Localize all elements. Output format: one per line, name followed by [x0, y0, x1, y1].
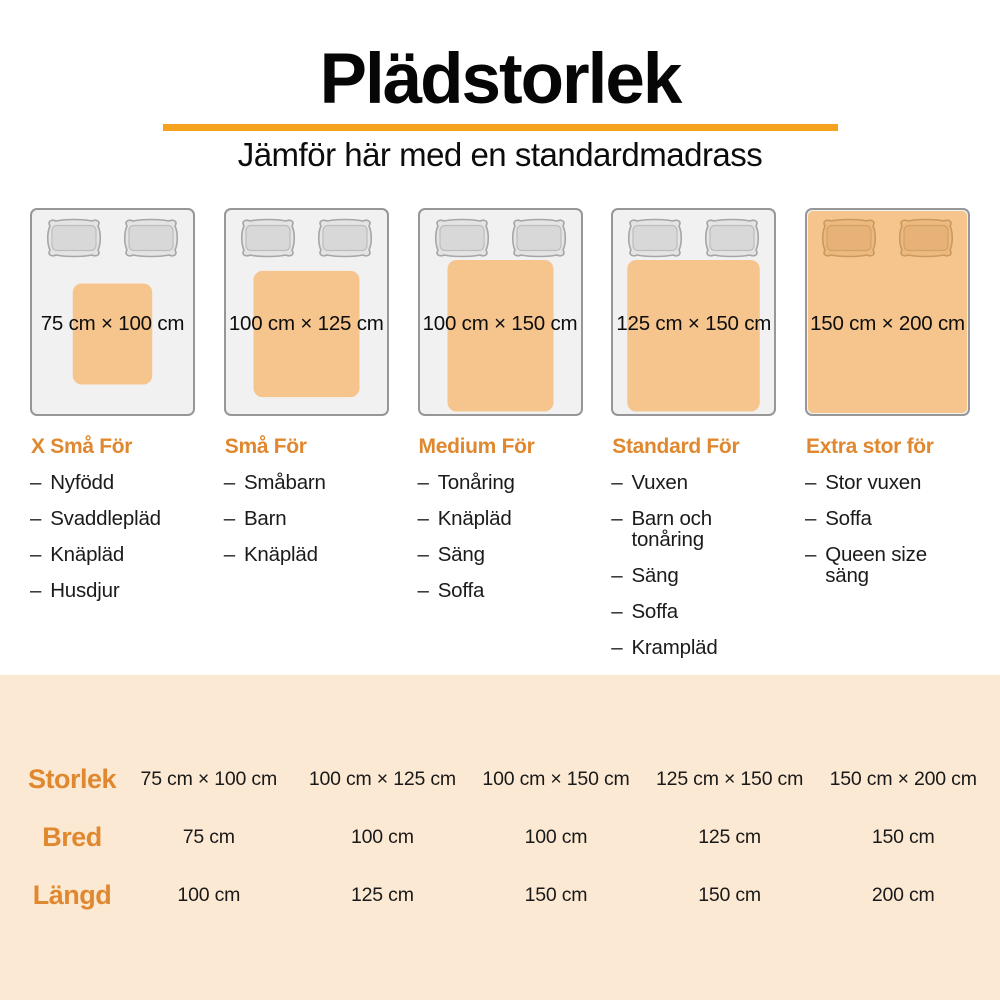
use-list: –Småbarn–Barn–Knäpläd [224, 472, 389, 565]
size-column: 150 cm × 200 cm Extra stor för –Stor vux… [805, 208, 970, 658]
table-cell: 200 cm [816, 884, 990, 907]
use-list-item: –Stor vuxen [805, 472, 970, 493]
use-list-item: –Krampläd [611, 637, 776, 658]
column-heading: Medium För [419, 436, 583, 457]
use-list-item: –Husdjur [30, 580, 195, 601]
list-dash: – [611, 508, 622, 550]
pillow-icon [823, 219, 876, 256]
pillow-icon [435, 219, 488, 256]
use-list-item: –Vuxen [611, 472, 776, 493]
list-item-text: Tonåring [438, 472, 515, 493]
bed-diagram: 100 cm × 125 cm [224, 208, 389, 416]
pillow-icon [48, 219, 101, 256]
pillow-icon [512, 219, 565, 256]
column-heading: Standard För [612, 436, 776, 457]
table-row-label: Längd [22, 880, 122, 911]
table-cell: 150 cm [643, 884, 817, 907]
table-row-label: Storlek [22, 764, 122, 795]
use-list-item: –Barn [224, 508, 389, 529]
pillow-icon [125, 219, 178, 256]
size-column: 75 cm × 100 cm X Små För –Nyfödd–Svaddle… [30, 208, 195, 658]
bed-diagram: 125 cm × 150 cm [611, 208, 776, 416]
list-dash: – [30, 544, 41, 565]
list-item-text: Vuxen [631, 472, 687, 493]
use-list-item: –Knäpläd [30, 544, 195, 565]
table-cell: 100 cm [296, 826, 470, 849]
list-item-text: Säng [438, 544, 485, 565]
list-dash: – [418, 544, 429, 565]
list-dash: – [418, 580, 429, 601]
use-list: –Nyfödd–Svaddlepläd–Knäpläd–Husdjur [30, 472, 195, 601]
list-dash: – [611, 637, 622, 658]
blanket-size-label: 100 cm × 150 cm [423, 312, 578, 336]
list-dash: – [224, 472, 235, 493]
pillow-icon [706, 219, 759, 256]
table-row-label: Bred [22, 822, 122, 853]
list-item-text: Småbarn [244, 472, 326, 493]
table-cell: 125 cm × 150 cm [643, 768, 817, 791]
pillow-icon [319, 219, 372, 256]
list-dash: – [224, 508, 235, 529]
list-item-text: Barn och tonåring [631, 508, 776, 550]
list-dash: – [805, 508, 816, 529]
list-dash: – [611, 565, 622, 586]
blanket-size-label: 100 cm × 125 cm [229, 312, 384, 336]
table-cell: 75 cm [122, 826, 296, 849]
list-item-text: Krampläd [631, 637, 717, 658]
use-list-item: –Knäpläd [418, 508, 583, 529]
list-item-text: Knäpläd [50, 544, 124, 565]
list-item-text: Säng [631, 565, 678, 586]
table-cell: 100 cm × 150 cm [469, 768, 643, 791]
use-list-item: –Queen size säng [805, 544, 970, 586]
list-dash: – [418, 508, 429, 529]
use-list-item: –Soffa [611, 601, 776, 622]
table-cell: 125 cm [643, 826, 817, 849]
table-cell: 150 cm [816, 826, 990, 849]
table-cell: 75 cm × 100 cm [122, 768, 296, 791]
use-list: –Stor vuxen–Soffa–Queen size säng [805, 472, 970, 586]
use-list: –Vuxen–Barn och tonåring–Säng–Soffa–Kram… [611, 472, 776, 658]
table-cell: 150 cm × 200 cm [816, 768, 990, 791]
list-dash: – [30, 472, 41, 493]
list-dash: – [30, 508, 41, 529]
list-dash: – [611, 472, 622, 493]
bed-diagram: 100 cm × 150 cm [418, 208, 583, 416]
use-list-item: –Knäpläd [224, 544, 389, 565]
table-cell: 100 cm [469, 826, 643, 849]
list-dash: – [418, 472, 429, 493]
use-list-item: –Småbarn [224, 472, 389, 493]
pillow-icon [242, 219, 295, 256]
list-item-text: Stor vuxen [825, 472, 921, 493]
table-cell: 100 cm × 125 cm [296, 768, 470, 791]
list-item-text: Knäpläd [244, 544, 318, 565]
blanket-size-label: 150 cm × 200 cm [810, 312, 965, 336]
size-column: 100 cm × 150 cm Medium För –Tonåring–Knä… [418, 208, 583, 658]
use-list-item: –Säng [418, 544, 583, 565]
pillow-icon [900, 219, 953, 256]
size-columns: 75 cm × 100 cm X Små För –Nyfödd–Svaddle… [0, 208, 1000, 658]
use-list-item: –Tonåring [418, 472, 583, 493]
use-list-item: –Säng [611, 565, 776, 586]
use-list-item: –Nyfödd [30, 472, 195, 493]
size-column: 125 cm × 150 cm Standard För –Vuxen–Barn… [611, 208, 776, 658]
table-cell: 150 cm [469, 884, 643, 907]
header: Plädstorlek Jämför här med en standardma… [0, 0, 1000, 173]
list-item-text: Soffa [631, 601, 678, 622]
table-cell: 125 cm [296, 884, 470, 907]
size-column: 100 cm × 125 cm Små För –Småbarn–Barn–Kn… [224, 208, 389, 658]
list-item-text: Soffa [825, 508, 872, 529]
subtitle: Jämför här med en standardmadrass [0, 138, 1000, 173]
list-dash: – [805, 544, 816, 586]
list-dash: – [224, 544, 235, 565]
list-item-text: Barn [244, 508, 287, 529]
page-title: Plädstorlek [0, 44, 1000, 115]
title-underline [163, 124, 838, 131]
blanket-size-label: 75 cm × 100 cm [41, 312, 185, 336]
list-dash: – [805, 472, 816, 493]
bed-diagram: 75 cm × 100 cm [30, 208, 195, 416]
size-comparison-table: Storlek75 cm × 100 cm100 cm × 125 cm100 … [0, 675, 1000, 1000]
list-item-text: Soffa [438, 580, 485, 601]
column-heading: Små För [225, 436, 389, 457]
list-item-text: Nyfödd [50, 472, 114, 493]
list-item-text: Queen size säng [825, 544, 970, 586]
use-list-item: –Barn och tonåring [611, 508, 776, 550]
list-item-text: Knäpläd [438, 508, 512, 529]
list-item-text: Husdjur [50, 580, 119, 601]
bed-diagram: 150 cm × 200 cm [805, 208, 970, 416]
list-dash: – [611, 601, 622, 622]
column-heading: Extra stor för [806, 436, 970, 457]
blanket-size-label: 125 cm × 150 cm [616, 312, 771, 336]
column-heading: X Små För [31, 436, 195, 457]
table-cell: 100 cm [122, 884, 296, 907]
list-dash: – [30, 580, 41, 601]
use-list: –Tonåring–Knäpläd–Säng–Soffa [418, 472, 583, 601]
use-list-item: –Soffa [805, 508, 970, 529]
pillow-icon [629, 219, 682, 256]
use-list-item: –Soffa [418, 580, 583, 601]
use-list-item: –Svaddlepläd [30, 508, 195, 529]
list-item-text: Svaddlepläd [50, 508, 161, 529]
